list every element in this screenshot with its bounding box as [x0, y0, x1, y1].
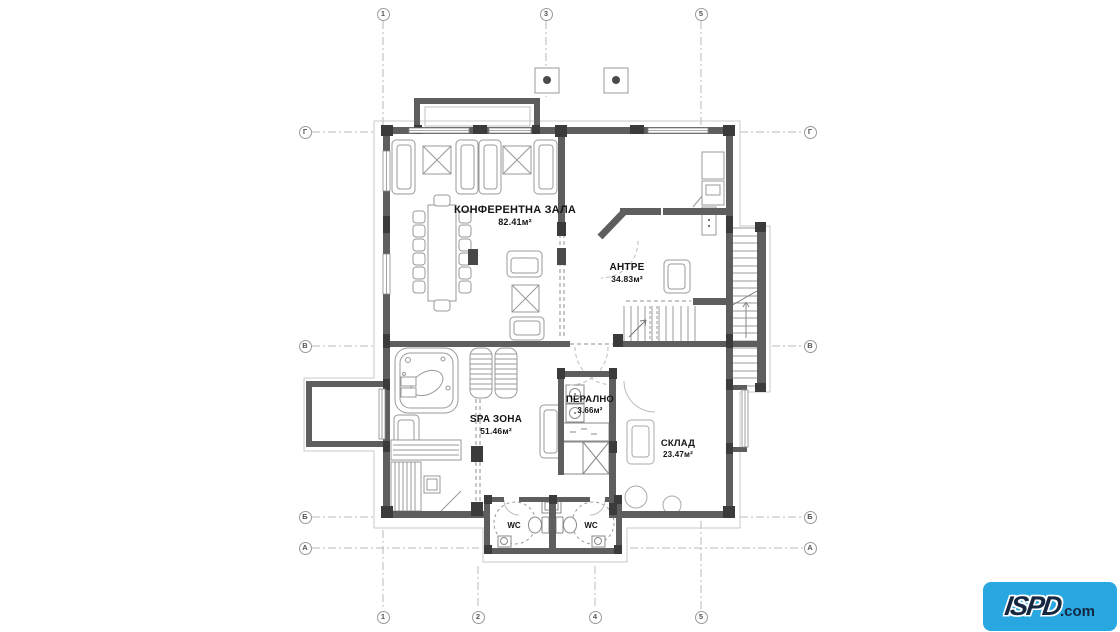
room-area: 82.41м²: [498, 217, 532, 229]
grid-label: В: [807, 342, 812, 350]
grid-marker-left-g: Г: [299, 126, 312, 139]
grid-marker-right-v: В: [804, 340, 817, 353]
room-label-laundry: ПЕРАЛНО 3.66м²: [540, 394, 640, 417]
room-area: 23.47м²: [663, 450, 693, 460]
grid-label: Б: [807, 513, 812, 521]
grid-label: 4: [593, 613, 597, 621]
conference-furniture: [392, 140, 557, 340]
room-label-conference: КОНФЕРЕНТНА ЗАЛА 82.41м²: [415, 203, 615, 229]
balcony-floor: [425, 107, 530, 126]
grid-marker-right-g: Г: [804, 126, 817, 139]
grid-marker-top-5: 5: [695, 8, 708, 21]
room-label-wc-left: WC: [494, 521, 534, 530]
room-label-storage: СКЛАД 23.47м²: [618, 438, 738, 461]
room-area: 3.66м²: [577, 406, 602, 416]
grid-marker-left-v: В: [299, 340, 312, 353]
room-area: 51.46м²: [480, 426, 512, 437]
grid-label: 5: [699, 10, 703, 18]
grid-marker-left-a: А: [299, 542, 312, 555]
room-name: АНТРЕ: [610, 261, 645, 274]
room-name: SPA ЗОНА: [470, 413, 522, 426]
grid-marker-right-a: А: [804, 542, 817, 555]
room-name: СКЛАД: [661, 438, 695, 450]
grid-label: А: [302, 544, 307, 552]
grid-label: 1: [381, 10, 385, 18]
grid-label: 1: [381, 613, 385, 621]
floor-plan-page: 1 3 5 1 2 4 5 Г В Б А Г В Б А КОНФЕРЕНТН…: [0, 0, 1120, 632]
grid-marker-top-3: 3: [540, 8, 553, 21]
room-name: ПЕРАЛНО: [566, 394, 614, 406]
grid-marker-bottom-1: 1: [377, 611, 390, 624]
floor-plan-svg: [0, 0, 1120, 632]
external-staircase: [729, 228, 757, 386]
grid-marker-top-1: 1: [377, 8, 390, 21]
room-label-antre: АНТРЕ 34.83м²: [567, 261, 687, 285]
grid-marker-right-b: Б: [804, 511, 817, 524]
storage-furniture: [625, 420, 681, 514]
ispd-logo: ISPD .com: [983, 582, 1117, 631]
room-area: 34.83м²: [611, 274, 643, 285]
grid-label: А: [807, 544, 812, 552]
grid-label: В: [302, 342, 307, 350]
grid-label: 3: [544, 10, 548, 18]
grid-marker-bottom-2: 2: [472, 611, 485, 624]
grid-label: 2: [476, 613, 480, 621]
grid-label: Б: [302, 513, 307, 521]
internal-staircase: [624, 306, 695, 341]
grid-marker-bottom-4: 4: [589, 611, 602, 624]
grid-label: 5: [699, 613, 703, 621]
ispd-logo-tld: .com: [1060, 603, 1095, 620]
room-label-wc-right: WC: [571, 521, 611, 530]
grid-label: Г: [303, 128, 307, 136]
ispd-logo-text: ISPD: [1003, 591, 1062, 622]
grid-marker-left-b: Б: [299, 511, 312, 524]
column-symbols: [535, 68, 628, 93]
grid-label: Г: [808, 128, 812, 136]
grid-marker-bottom-5: 5: [695, 611, 708, 624]
room-name: КОНФЕРЕНТНА ЗАЛА: [454, 203, 576, 217]
